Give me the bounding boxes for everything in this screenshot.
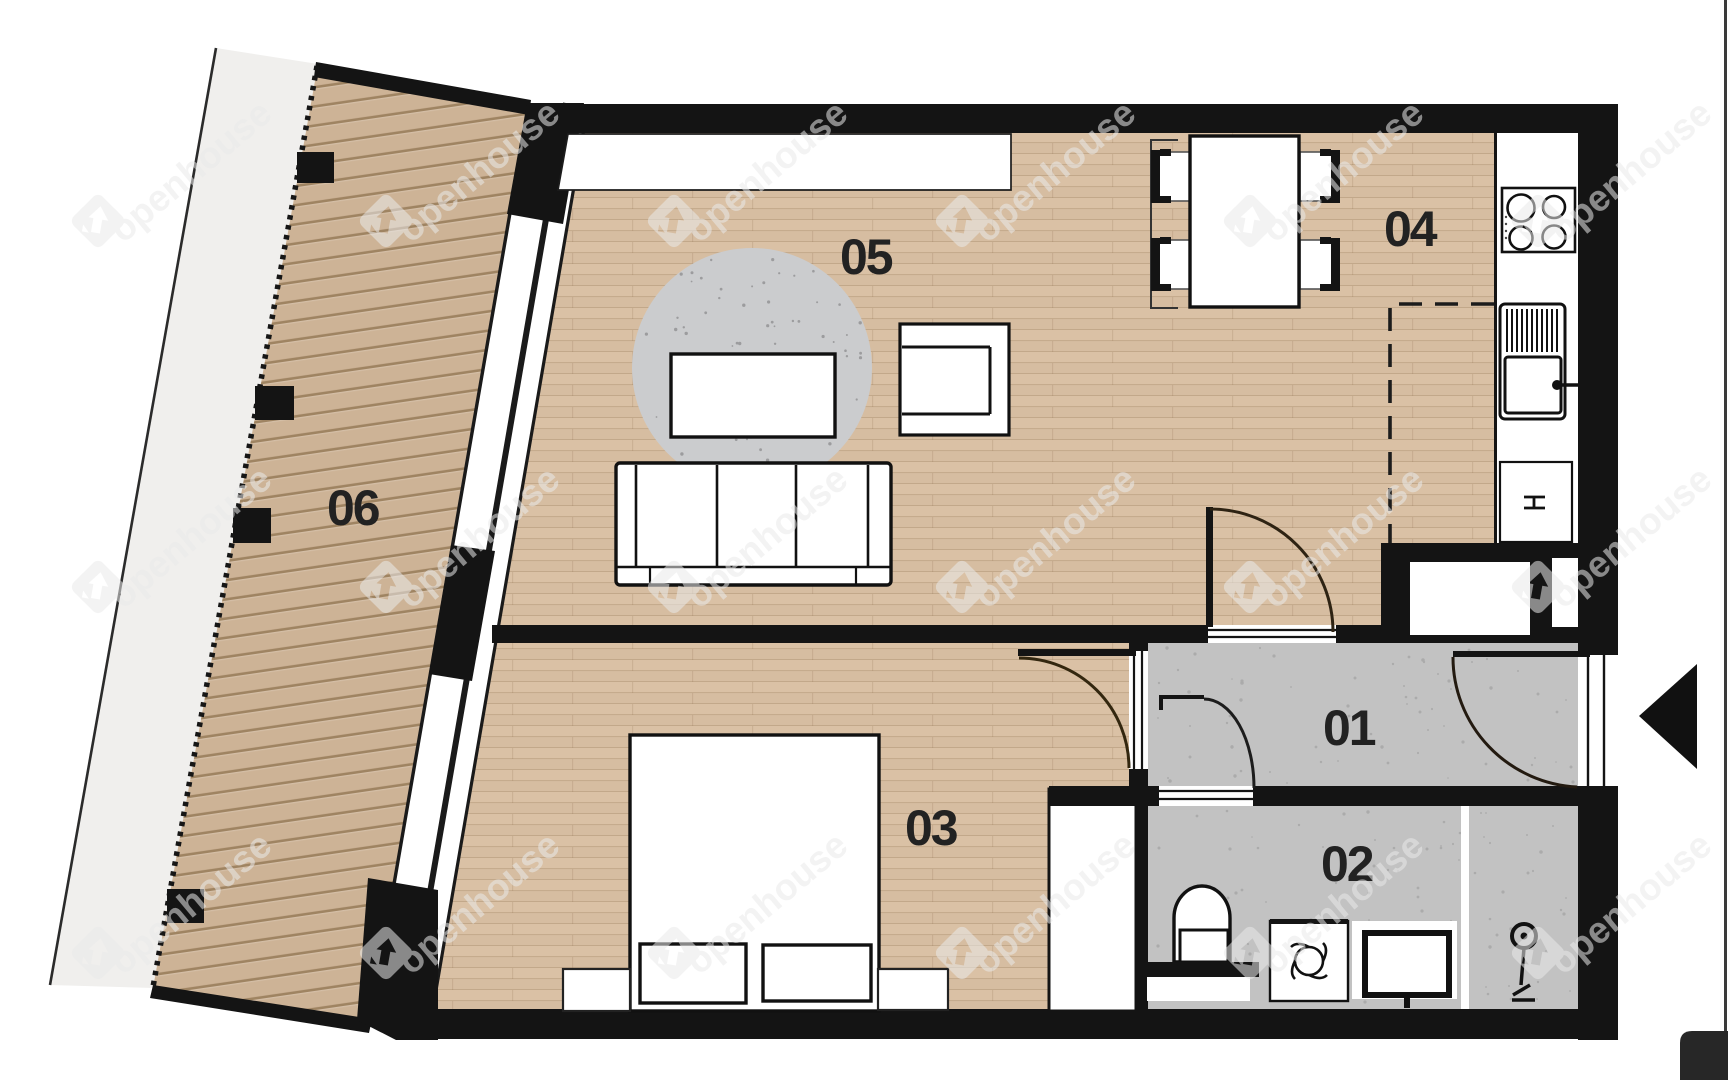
svg-text:03: 03 <box>905 800 957 856</box>
svg-text:01: 01 <box>1323 700 1376 756</box>
svg-text:06: 06 <box>327 480 379 536</box>
svg-text:05: 05 <box>840 229 893 285</box>
svg-text:04: 04 <box>1384 201 1438 257</box>
